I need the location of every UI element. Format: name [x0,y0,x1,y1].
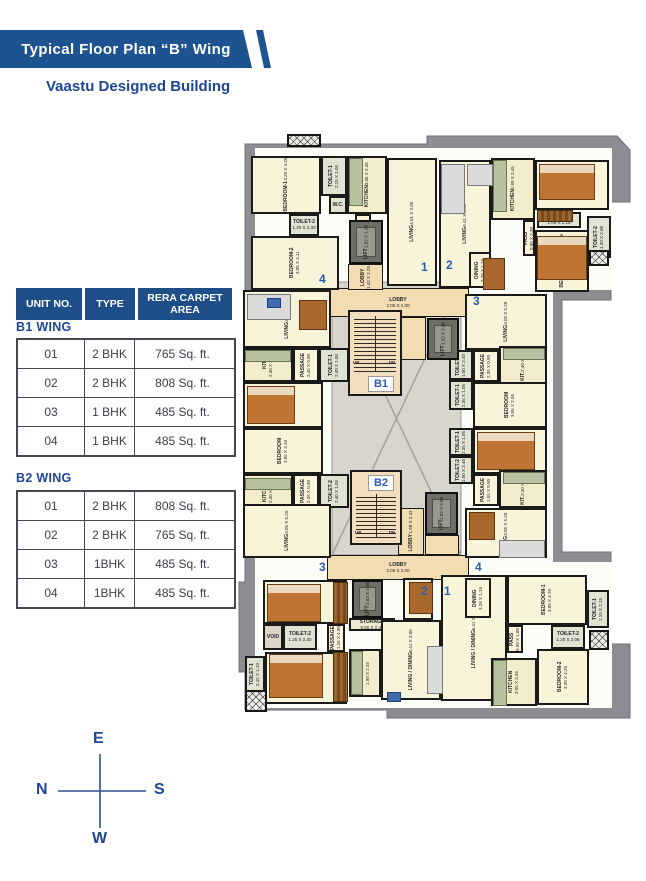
room-label: BEDROOM3.05 X 3.10 [277,430,289,472]
stair-dn-label: ← DN [383,360,395,365]
table-cell: 485 Sq. ft. [134,550,230,578]
brochure-page: { "header": { "title": "Typical Floor Pl… [0,0,646,873]
sofa-icon [441,164,465,214]
lobby [398,317,426,360]
wing-core-label: B2 [368,475,394,491]
table-cell: 485 Sq. ft. [134,579,230,607]
table-cell: 1BHK [84,550,134,578]
room-label: PASSAGE2.35 X 0.90 [480,352,492,380]
room-label: KITCHEN3.05 X 2.45 [508,660,520,704]
table-cell: 01 [18,340,84,368]
table-icon [469,512,495,540]
room-label: TOILET-21.25 X 2.30 [292,219,315,230]
room-toilet-2: TOILET-22.40 X 1.05 [319,474,349,508]
counter-icon [493,160,507,212]
table-icon [483,258,505,290]
table-cell: 2 BHK [84,492,134,520]
room-label: LIVING / DINING6.41 X 3.05 [408,629,414,690]
table-row: 031 BHK485 Sq. ft. [18,397,234,426]
column-header: TYPE [85,288,135,320]
counter-icon [493,660,507,706]
unit-marker-4: 4 [475,560,482,574]
wing-table: 012 BHK765 Sq. ft.022 BHK808 Sq. ft.031 … [16,338,236,457]
unit-marker-3: 3 [319,560,326,574]
table-row: 012 BHK808 Sq. ft. [18,492,234,520]
room-label: KITCHEN3.05 X 2.45 [364,162,370,207]
table-row: 031BHK485 Sq. ft. [18,549,234,578]
room-bedroom-1: BEDROOM-13.20 X 4.25 [251,156,321,214]
compass: E N S W [28,726,178,876]
table-cell: 03 [18,550,84,578]
room-void: VOID [263,624,283,650]
sofa-icon [427,646,443,694]
room-pass: PASS0.90 X 2.30 [523,220,535,256]
room-label: PASSAGE1.25 X 4.90 [330,626,342,650]
tv-icon [267,298,281,308]
table-cell: 03 [18,398,84,426]
room-label: TOILET-12.15 X 1.10 [249,658,261,690]
unit-marker-2: 2 [446,258,453,272]
shaft-hatch [589,630,609,650]
room-label: TOILET-22.40 X 1.05 [328,476,340,506]
bed-icon [539,164,595,200]
compass-north: N [36,781,48,799]
bed-icon [537,236,587,280]
counter-icon [349,158,363,206]
stair-up-label: UP → [355,530,367,535]
table-cell: 485 Sq. ft. [134,427,230,455]
room-living: LIVING4.01 X 3.05 [387,158,437,286]
lobby [425,535,459,555]
wing-label: B1 WING [16,320,72,334]
table-cell: 01 [18,492,84,520]
table-row: 022 BHK765 Sq. ft. [18,520,234,549]
lift-shaft: LIFT1.82 X 1.98 [349,220,383,264]
area-table-header: UNIT NO.TYPERERA CARPET AREA [16,288,232,320]
room-bedroom: BEDROOM3.05 X 2.95 [473,382,547,428]
compass-south: S [154,781,165,799]
room-label: TOILET-12.40 X 1.00 [328,350,340,380]
room-label: BEDROOM3.05 X 2.95 [504,384,516,426]
lift-shaft: LIFT1.92 X 2.06 [427,318,459,360]
title-banner: Typical Floor Plan “B” Wing [0,30,252,68]
room-label: W.C. [333,202,344,208]
column-header: RERA CARPET AREA [138,288,232,320]
room-label: PASS0.90 X 2.30 [523,222,535,254]
room-label: LIVING3.05 X 5.20 [284,511,290,551]
wing-core-label: B1 [368,376,394,392]
bed-icon [477,432,535,470]
room-label: LIFT1.92 X 2.06 [427,494,456,533]
room-label: LIFT1.82 X 1.98 [351,222,381,262]
room-toilet-2: TOILET-21.25 X 2.30 [283,624,317,650]
table-cell: 765 Sq. ft. [134,340,230,368]
room-toilet-1: TOILET-12.35 X 1.05 [449,380,473,410]
room-toilet-2: TOILET-21.25 X 2.30 [289,214,319,236]
room-toilet-1: TOILET-12.40 X 1.00 [319,348,349,382]
room-label: LOBBY2.06 X 2.00 [386,297,409,308]
table-row: 041 BHK485 Sq. ft. [18,426,234,455]
table-cell: 2 BHK [84,369,134,397]
room-label: LIFT1.92 X 2.06 [429,320,457,358]
lift-shaft: LIFT1.92 X 2.06 [425,492,458,535]
room-label: LOBBY1.98 X 2.43 [408,511,414,552]
room-label: PASS0.90 X 1.85 [509,627,521,651]
room-label: BEDROOM-23.05 X 4.11 [289,238,301,288]
shaft-hatch [287,134,321,147]
room-label: TOILET-21.00 X 2.40 [455,458,467,482]
table-row: 041BHK485 Sq. ft. [18,578,234,607]
room-bedroom: BEDROOM3.05 X 3.10 [243,428,323,474]
room-label: TOILET-12.15 X 1.05 [328,158,340,194]
table-cell: 04 [18,579,84,607]
room-living: LIVING3.05 X 5.20 [243,504,331,558]
stair-dn-label: ← DN [383,530,395,535]
room-label: TOILET-12.35 X 1.05 [455,382,467,408]
wing-label: B2 WING [16,471,72,485]
page-title: Typical Floor Plan “B” Wing [21,41,231,58]
room-passage: PASSAGE2.35 X 0.90 [293,474,319,508]
stair-up-label: UP → [353,360,365,365]
table-cell: 2 BHK [84,521,134,549]
table-icon [299,300,327,330]
table-cell: 1 BHK [84,427,134,455]
page-subtitle: Vaastu Designed Building [46,78,230,95]
table-row: 012 BHK765 Sq. ft. [18,340,234,368]
room-label: TOILET-11.10 X 2.15 [592,592,604,626]
room-label: DINING3.28 X 1.19 [472,580,484,616]
room-label: BEDROOM-13.05 X 4.70 [541,577,553,623]
room-bedroom-1: BEDROOM-13.05 X 4.70 [507,575,587,625]
unit-marker-1: 1 [421,260,428,274]
room-dining: DINING3.28 X 1.19 [465,578,491,618]
room-passage: PASSAGE1.25 X 4.90 [327,624,345,652]
floor-plan: LOBBY2.06 X 2.00LOBBY1.42 X 2.29LOBBY1.9… [237,132,639,725]
table-cell: 2 BHK [84,340,134,368]
table-cell: 02 [18,521,84,549]
counter-icon [503,472,545,484]
room-label: VOID [267,634,279,640]
room-bedroom-2: BEDROOM-23.20 X 4.25 [537,649,589,705]
room-passage: PASSAGE2.45 X 0.90 [293,348,319,382]
table-cell: 765 Sq. ft. [134,521,230,549]
room-label: TOILET-21.25 X 2.30 [288,631,311,642]
room-toilet-1: TOILET-12.35 X 1.05 [449,428,473,456]
room-label: KITCHEN1.89 X 2.45 [510,166,516,211]
counter-icon [351,651,363,695]
table-cell: 1 BHK [84,398,134,426]
wardrobe-icon [333,582,348,624]
compass-east: E [93,730,104,748]
bed-icon [247,386,295,424]
shaft-hatch [245,690,267,712]
room-label: PASSAGE2.35 X 0.90 [300,476,312,506]
counter-icon [245,478,291,490]
shaft-hatch [589,250,609,266]
wardrobe-icon [537,210,573,222]
room-toilet-1: TOILET-12.15 X 1.05 [321,156,347,196]
bed-icon [267,584,321,622]
room-label: LIVING4.01 X 3.05 [409,202,415,242]
lift-shaft: LIFT2.03 X 2.06 [352,580,383,618]
sofa-icon [467,164,493,186]
room-toilet-2: TOILET-21.20 X 2.06 [551,625,585,649]
sofa-icon [499,540,545,558]
room-label: PASSAGE1.55 X 0.90 [480,476,492,504]
compass-west: W [92,830,107,848]
room-label: TOILET-12.35 X 1.05 [455,430,467,454]
room-pass: PASS0.90 X 1.85 [507,625,523,653]
room-label: LOBBY1.42 X 2.29 [360,265,372,289]
room-label: LOBBY2.06 X 2.00 [386,562,409,573]
room-label: LIVING3.05 X 5.28 [503,302,509,342]
table-cell: 1BHK [84,579,134,607]
unit-marker-4: 4 [319,272,326,286]
room-toilet-1: TOILET-11.10 X 2.15 [587,590,609,628]
bed-icon [269,654,323,698]
room-w-c-: W.C. [329,196,347,214]
counter-icon [503,348,545,360]
table-cell: 808 Sq. ft. [134,492,230,520]
table-row: 022 BHK808 Sq. ft. [18,368,234,397]
room-toilet-2: TOILET-21.00 X 2.40 [449,456,473,484]
column-header: UNIT NO. [16,288,82,320]
unit-marker-2: 2 [421,584,428,598]
table-cell: 808 Sq. ft. [134,369,230,397]
unit-marker-3: 3 [473,294,480,308]
room-label: BEDROOM-23.20 X 4.25 [557,651,569,703]
room-label: PASSAGE2.45 X 0.90 [300,350,312,380]
compass-lines [28,726,178,876]
room-toilet-1: TOILET-12.15 X 1.10 [245,656,265,692]
table-cell: 485 Sq. ft. [134,398,230,426]
room-passage: PASSAGE1.55 X 0.90 [473,474,499,506]
room-passage: PASSAGE2.35 X 0.90 [473,350,499,382]
lobby: LOBBY1.42 X 2.29 [348,264,383,290]
counter-icon [245,350,291,362]
wing-table: 012 BHK808 Sq. ft.022 BHK765 Sq. ft.031B… [16,490,236,609]
wardrobe-icon [333,652,348,702]
room-label: LIFT2.03 X 2.06 [354,582,381,616]
room-label: BEDROOM-13.20 X 4.25 [283,158,289,212]
tv-icon [387,692,401,702]
room-label: TOILET-21.20 X 2.06 [556,631,579,642]
table-cell: 04 [18,427,84,455]
unit-marker-1: 1 [444,584,451,598]
table-cell: 02 [18,369,84,397]
